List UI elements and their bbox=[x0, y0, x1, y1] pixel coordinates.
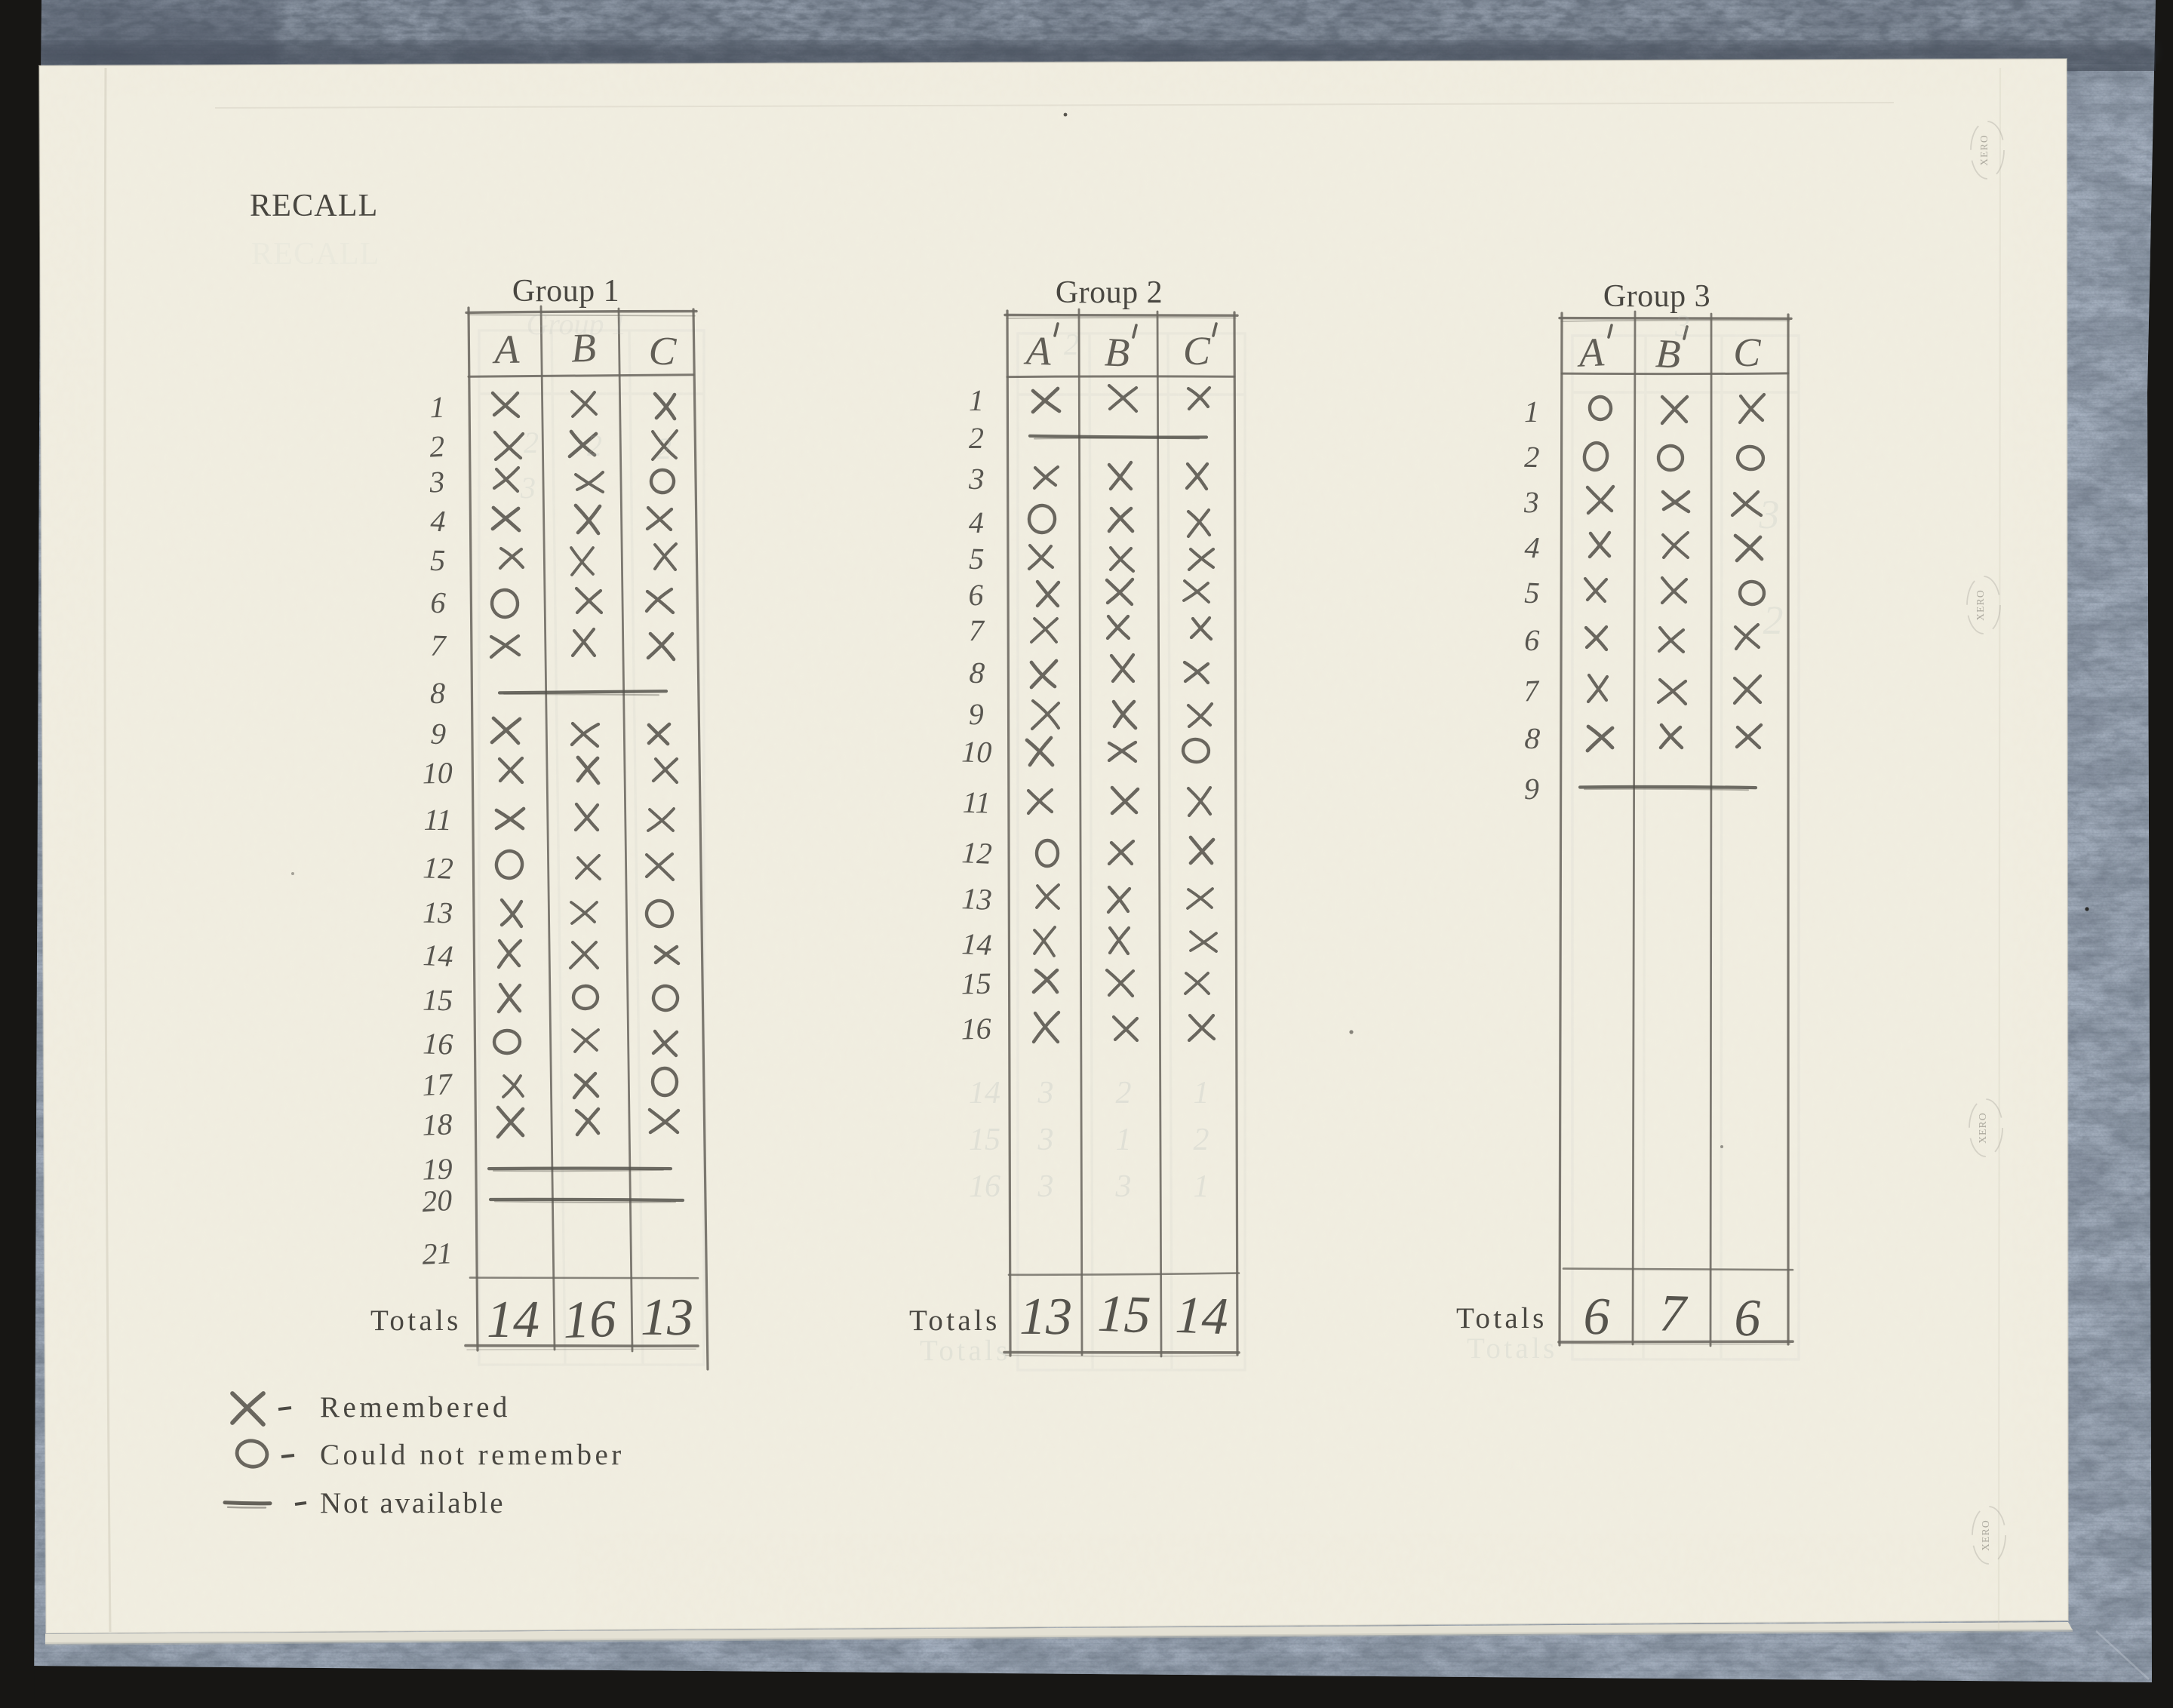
svg-text:16: 16 bbox=[969, 1169, 1000, 1204]
svg-text:3: 3 bbox=[1037, 1169, 1054, 1204]
svg-text:13: 13 bbox=[961, 881, 993, 917]
svg-text:2: 2 bbox=[656, 432, 672, 465]
svg-text:14: 14 bbox=[1174, 1286, 1229, 1347]
svg-text:9: 9 bbox=[968, 697, 984, 731]
svg-text:9: 9 bbox=[429, 716, 447, 751]
svg-text:3: 3 bbox=[1674, 309, 1690, 343]
svg-text:10: 10 bbox=[961, 734, 992, 769]
svg-text:1: 1 bbox=[429, 390, 445, 424]
svg-text:7: 7 bbox=[969, 613, 985, 647]
svg-text:17: 17 bbox=[421, 1067, 455, 1103]
svg-text:2: 2 bbox=[587, 429, 602, 462]
svg-text:2: 2 bbox=[969, 421, 984, 455]
svg-text:12: 12 bbox=[423, 850, 454, 886]
svg-text:19: 19 bbox=[422, 1151, 453, 1186]
svg-text:14: 14 bbox=[487, 1291, 539, 1349]
svg-text:2: 2 bbox=[429, 429, 446, 463]
svg-text:Totals: Totals bbox=[370, 1304, 462, 1337]
svg-text:3: 3 bbox=[1037, 1076, 1054, 1111]
svg-text:5: 5 bbox=[1524, 576, 1541, 610]
svg-text:11: 11 bbox=[962, 785, 991, 820]
svg-text:15: 15 bbox=[423, 983, 453, 1017]
svg-text:A: A bbox=[1575, 329, 1606, 376]
svg-text:15: 15 bbox=[1096, 1285, 1151, 1345]
svg-text:XERO: XERO bbox=[1980, 1519, 1991, 1551]
svg-text:XERO: XERO bbox=[1977, 1112, 1988, 1144]
svg-text:Group 2: Group 2 bbox=[1056, 275, 1163, 310]
svg-text:16: 16 bbox=[562, 1290, 617, 1350]
svg-text:16: 16 bbox=[423, 1026, 453, 1061]
svg-text:13: 13 bbox=[641, 1289, 693, 1347]
svg-text:7: 7 bbox=[1658, 1284, 1689, 1343]
svg-text:Totals: Totals bbox=[1456, 1302, 1548, 1335]
svg-text:XERO: XERO bbox=[1975, 589, 1986, 621]
svg-text:21: 21 bbox=[422, 1236, 453, 1270]
svg-text:15: 15 bbox=[960, 966, 991, 1001]
svg-text:1: 1 bbox=[1524, 395, 1539, 429]
svg-text:10: 10 bbox=[422, 756, 453, 791]
svg-text:3: 3 bbox=[428, 464, 445, 499]
svg-text:8: 8 bbox=[1523, 720, 1541, 755]
svg-text:5: 5 bbox=[969, 542, 985, 576]
svg-text:13: 13 bbox=[1019, 1288, 1072, 1346]
svg-text:Remembered: Remembered bbox=[320, 1391, 511, 1424]
svg-text:C: C bbox=[1183, 328, 1211, 373]
svg-text:3: 3 bbox=[1115, 1169, 1132, 1204]
svg-text:3: 3 bbox=[968, 462, 985, 496]
svg-text:Totals: Totals bbox=[920, 1335, 1011, 1367]
svg-text:6: 6 bbox=[1524, 623, 1540, 657]
svg-text:18: 18 bbox=[422, 1107, 453, 1141]
svg-text:15: 15 bbox=[969, 1123, 1000, 1157]
svg-text:5: 5 bbox=[430, 543, 446, 577]
svg-text:Group 3: Group 3 bbox=[1603, 279, 1710, 314]
svg-text:9: 9 bbox=[1524, 772, 1539, 806]
svg-text:1: 1 bbox=[1194, 1076, 1209, 1111]
svg-text:2: 2 bbox=[1763, 597, 1784, 643]
svg-text:1: 1 bbox=[1116, 1123, 1132, 1157]
svg-text:11: 11 bbox=[423, 803, 451, 837]
svg-text:3: 3 bbox=[1523, 485, 1539, 519]
svg-text:RECALL: RECALL bbox=[250, 189, 379, 223]
svg-text:12: 12 bbox=[961, 835, 993, 871]
svg-text:RECALL: RECALL bbox=[251, 237, 380, 272]
svg-text:14: 14 bbox=[969, 1076, 1000, 1111]
svg-text:6: 6 bbox=[430, 585, 447, 620]
svg-text:Could not remember: Could not remember bbox=[320, 1439, 625, 1471]
svg-text:4: 4 bbox=[1524, 530, 1541, 565]
svg-text:6: 6 bbox=[1583, 1288, 1609, 1346]
svg-text:3: 3 bbox=[1759, 492, 1780, 537]
svg-text:14: 14 bbox=[423, 938, 454, 973]
svg-text:2: 2 bbox=[1116, 1076, 1132, 1111]
svg-text:B: B bbox=[1104, 329, 1130, 375]
svg-text:C: C bbox=[1733, 330, 1762, 376]
svg-text:13: 13 bbox=[423, 895, 453, 930]
svg-text:Totals: Totals bbox=[1467, 1332, 1558, 1365]
svg-text:3: 3 bbox=[520, 471, 536, 505]
svg-text:14: 14 bbox=[961, 926, 993, 962]
svg-text:4: 4 bbox=[969, 505, 985, 539]
svg-text:Group 1: Group 1 bbox=[527, 307, 627, 341]
svg-text:16: 16 bbox=[960, 1011, 991, 1046]
svg-text:4: 4 bbox=[430, 504, 447, 539]
svg-text:1: 1 bbox=[1194, 1169, 1209, 1204]
svg-text:A: A bbox=[492, 327, 521, 373]
svg-text:2: 2 bbox=[1194, 1123, 1209, 1157]
svg-text:A: A bbox=[1023, 327, 1053, 373]
svg-text:8: 8 bbox=[968, 655, 985, 690]
svg-text:20: 20 bbox=[421, 1183, 453, 1218]
svg-text:7: 7 bbox=[430, 628, 447, 663]
svg-text:2: 2 bbox=[524, 425, 539, 459]
svg-text:3: 3 bbox=[1037, 1123, 1054, 1157]
svg-text:2: 2 bbox=[1064, 327, 1079, 361]
svg-text:XERO: XERO bbox=[1978, 134, 1990, 166]
svg-text:2: 2 bbox=[1524, 440, 1540, 474]
svg-text:C: C bbox=[647, 327, 678, 374]
svg-text:8: 8 bbox=[430, 676, 445, 710]
svg-text:Group 1: Group 1 bbox=[512, 274, 619, 309]
svg-text:Totals: Totals bbox=[909, 1304, 1000, 1337]
svg-text:1: 1 bbox=[969, 383, 984, 417]
svg-text:Not available: Not available bbox=[320, 1487, 505, 1519]
svg-text:6: 6 bbox=[967, 578, 984, 613]
svg-text:6: 6 bbox=[1734, 1289, 1760, 1347]
